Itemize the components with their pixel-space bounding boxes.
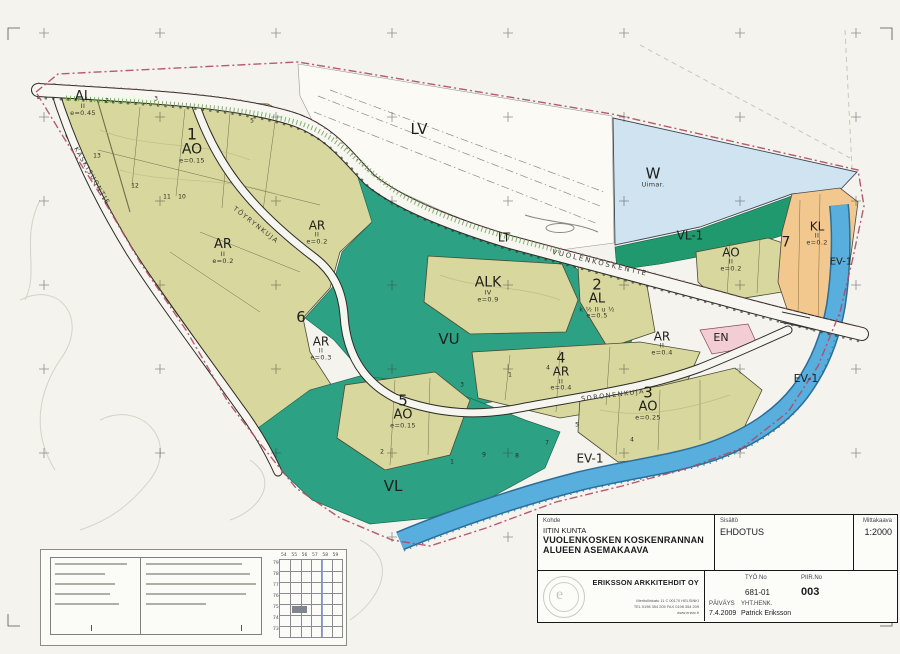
index-grid-row-label: 77: [273, 583, 279, 588]
plan-title-line2: ALUEEN ASEMAKAAVA: [543, 545, 709, 555]
firm-name: ERIKSSON ARKKITEHDIT OY: [593, 578, 700, 587]
scale-tick: [241, 625, 242, 631]
index-grid-col-label: 59: [333, 553, 339, 558]
index-grid-col-label: 55: [291, 553, 297, 558]
date-label: PÄIVÄYS: [709, 601, 735, 607]
index-grid-row-label: 78: [273, 572, 279, 577]
date-value: 7.4.2009: [709, 610, 736, 617]
title-block-meta-cell: TYÖ No PIIR.No 681-01 003 PÄIVÄYS 7.4.20…: [705, 571, 897, 621]
index-grid-sheet-line: [321, 560, 322, 637]
plan-title-line1: VUOLENKOSKEN KOSKENRANNAN: [543, 535, 709, 545]
index-grid-col-label: 54: [281, 553, 287, 558]
index-grid-cells: [279, 559, 343, 638]
piir-no-label: PIIR.No: [801, 575, 822, 581]
title-block-scale-cell: Mittakaava 1:2000: [854, 515, 897, 570]
sisalto-label: Sisältö: [720, 518, 848, 524]
index-grid-col-label: 58: [322, 553, 328, 558]
legend-table: [50, 557, 262, 635]
index-grid-highlight: [292, 606, 306, 613]
contact-label: YHT.HENK.: [741, 601, 772, 607]
legend-table-right: [141, 558, 261, 634]
index-grid-row-label: 74: [273, 616, 279, 621]
index-grid: 54555657585979787776757473: [273, 552, 343, 638]
title-block-sisalto-cell: Sisältö EHDOTUS: [715, 515, 854, 570]
municipality: IITIN KUNTA: [543, 526, 709, 535]
contact-value: Patrick Eriksson: [741, 610, 791, 617]
sisalto-value: EHDOTUS: [720, 527, 848, 537]
index-grid-col-label: 56: [302, 553, 308, 558]
piir-no-value: 003: [801, 586, 819, 598]
scale-value: 1:2000: [859, 527, 892, 537]
firm-logo-icon: [543, 576, 585, 618]
scale-tick: [91, 625, 92, 631]
kohde-label: Kohde: [543, 518, 709, 524]
firm-address: Meritullinkatu 11 C 00170 HELSINKI TEL 0…: [634, 598, 699, 616]
index-grid-row-label: 73: [273, 627, 279, 632]
title-block-kohde-cell: Kohde IITIN KUNTA VUOLENKOSKEN KOSKENRAN…: [538, 515, 715, 570]
title-block-firm-cell: ERIKSSON ARKKITEHDIT OY Meritullinkatu 1…: [538, 571, 705, 621]
title-block: Kohde IITIN KUNTA VUOLENKOSKEN KOSKENRAN…: [537, 514, 898, 623]
index-grid-row-label: 75: [273, 605, 279, 610]
index-grid-col-label: 57: [312, 553, 318, 558]
tyo-no-value: 681-01: [745, 588, 770, 597]
index-grid-row-label: 76: [273, 594, 279, 599]
legend-box: 54555657585979787776757473: [40, 549, 347, 646]
legend-table-left: [51, 558, 141, 634]
index-grid-row-label: 79: [273, 561, 279, 566]
tyo-no-label: TYÖ No: [745, 575, 767, 581]
plan-sheet: ALIIe=0.451AOe=0.15ARIIe=0.2ARIIe=0.26AR…: [0, 0, 900, 654]
scale-label: Mittakaava: [859, 518, 892, 524]
